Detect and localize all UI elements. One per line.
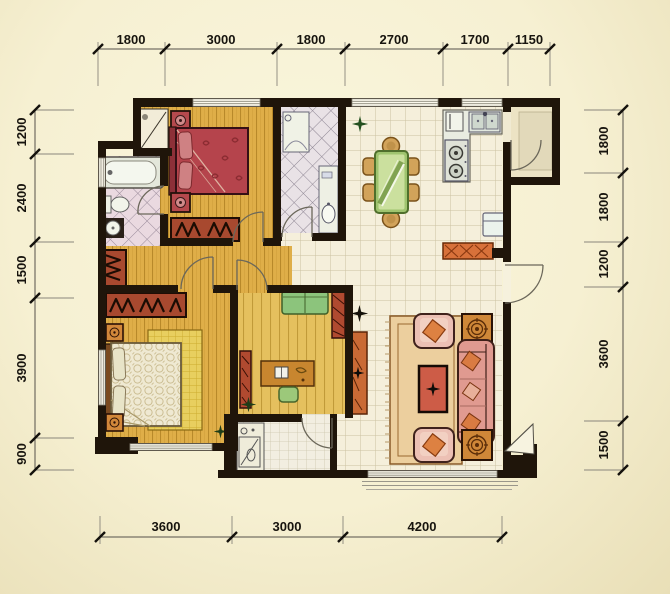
stove-icon: [445, 140, 468, 181]
cabinet-study: [332, 290, 345, 338]
bookshelf-narrow: [240, 351, 251, 408]
dimension-chain-bottom: 3600 3000 4200: [95, 516, 507, 544]
nightstand: [171, 193, 190, 212]
bed-pillow: [112, 348, 126, 381]
nightstand: [106, 324, 123, 341]
dim-left-2: 1500: [14, 256, 29, 285]
wardrobe-bedroom2: [106, 293, 186, 317]
shower: [283, 112, 309, 152]
armchair: [414, 314, 454, 348]
dim-left-3: 3900: [14, 354, 29, 383]
window: [99, 350, 105, 405]
sink-icon: [469, 112, 500, 132]
coffee-table: [419, 366, 447, 412]
dim-bottom-1: 3000: [273, 519, 302, 534]
bed-headboard: [169, 127, 176, 195]
dining-table: [375, 151, 408, 213]
dim-left-4: 900: [14, 443, 29, 465]
desk-chair: [279, 387, 298, 402]
sofa: [458, 340, 494, 444]
loveseat: [282, 291, 328, 314]
utility-room-mat: [519, 112, 552, 170]
dim-right-3: 3600: [596, 340, 611, 369]
toilet: [104, 196, 129, 213]
shoe-cabinet: [443, 243, 493, 259]
floor-plan-canvas: 1800 3000 1800 2700 1700 1150 3600 3000 …: [0, 0, 670, 594]
window-living-bay: [362, 471, 518, 490]
armchair: [414, 428, 454, 462]
double-bed-master: [169, 127, 248, 195]
dim-top-3: 2700: [380, 32, 409, 47]
nightstand: [106, 414, 123, 431]
window: [352, 99, 438, 106]
bathtub: [100, 157, 163, 188]
wardrobe-master: [171, 218, 239, 241]
dim-left-1: 2400: [14, 184, 29, 213]
dim-top-5: 1150: [515, 32, 543, 47]
dim-right-0: 1800: [596, 127, 611, 156]
desk: [261, 361, 314, 386]
window: [462, 99, 502, 106]
vanity-basin: [319, 166, 338, 233]
kitchen-appliance: [446, 112, 463, 131]
hall-closet: [138, 109, 168, 153]
dim-right-4: 1500: [596, 431, 611, 460]
bed-pillow: [178, 132, 193, 160]
utility-threshold: [503, 112, 511, 142]
window: [193, 99, 260, 106]
side-table: [462, 430, 492, 460]
floor-plan-svg: 1800 3000 1800 2700 1700 1150 3600 3000 …: [0, 0, 670, 594]
entry-threshold: [503, 262, 511, 302]
bed-pillow: [178, 162, 193, 190]
dim-left-0: 1200: [14, 118, 29, 147]
dimension-chain-top: 1800 3000 1800 2700 1700 1150: [93, 32, 555, 86]
window: [130, 444, 212, 450]
dimension-chain-right: 1800 1800 1200 3600 1500: [584, 105, 628, 475]
window: [99, 158, 105, 187]
dim-top-4: 1700: [461, 32, 490, 47]
dim-right-2: 1200: [596, 250, 611, 279]
dim-bottom-2: 4200: [408, 519, 437, 534]
dim-top-2: 1800: [297, 32, 326, 47]
dimension-chain-left: 1200 2400 1500 3900 900: [14, 105, 74, 475]
dim-bottom-0: 3600: [152, 519, 181, 534]
dim-right-1: 1800: [596, 193, 611, 222]
dim-top-1: 3000: [207, 32, 236, 47]
dim-top-0: 1800: [117, 32, 146, 47]
